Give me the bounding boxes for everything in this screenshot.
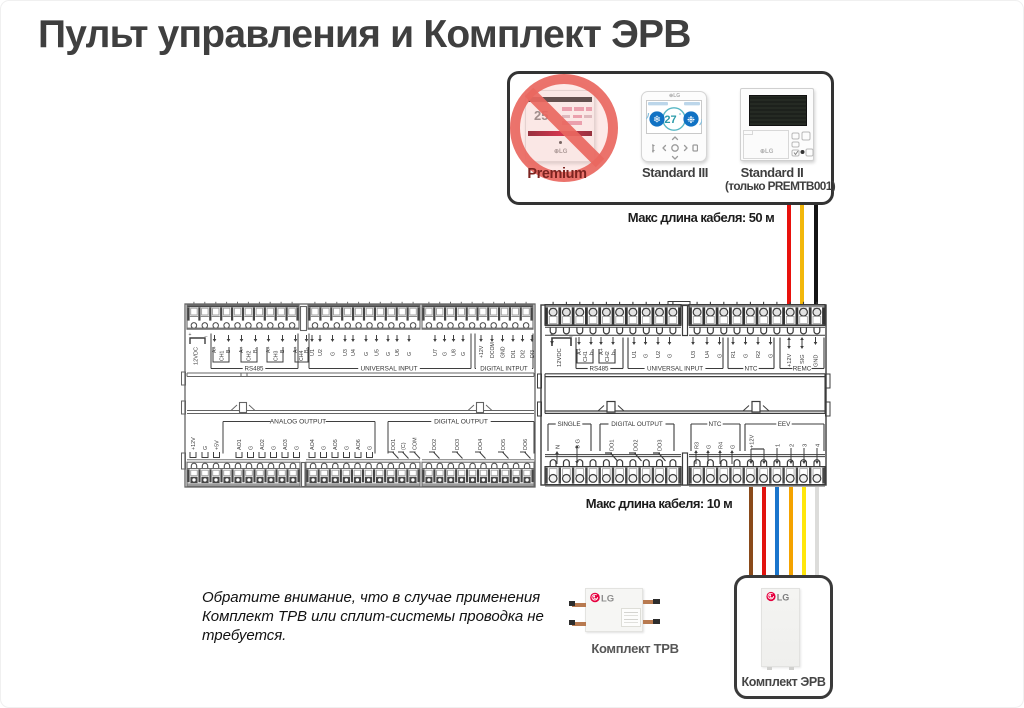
svg-text:DI2: DI2 [521,350,527,358]
svg-text:U7: U7 [433,349,439,356]
svg-text:U3: U3 [343,349,349,356]
svg-text:b-: b- [611,350,617,355]
svg-text:GND: GND [501,346,507,358]
svg-text:G: G [249,446,255,450]
svg-text:R4: R4 [719,442,725,449]
svg-text:B-: B- [253,348,259,353]
svg-text:❄: ❄ [653,115,661,126]
svg-text:NTC: NTC [709,421,722,428]
svg-text:DO2: DO2 [634,439,640,451]
svg-text:A+: A+ [239,347,245,354]
svg-text:+5V: +5V [215,440,221,450]
svg-text:U1: U1 [310,349,316,356]
svg-text:DIGITAL OUTPUT: DIGITAL OUTPUT [611,421,663,428]
svg-text:G: G [368,446,374,450]
svg-text:b-: b- [589,350,595,355]
svg-text:RS485: RS485 [245,366,264,373]
svg-text:R1: R1 [731,351,737,358]
svg-text:CH3: CH3 [274,351,280,361]
svg-text:ANALOG OUTPUT: ANALOG OUTPUT [270,419,326,426]
svg-text:❉: ❉ [687,115,695,126]
svg-text:N: N [556,445,562,449]
svg-text:DO1: DO1 [610,439,616,451]
svg-text:DO6: DO6 [523,439,529,450]
svg-text:3: 3 [803,444,809,447]
svg-text:DO3: DO3 [658,439,664,451]
svg-text:+12V: +12V [479,345,485,358]
svg-text:AO2: AO2 [260,439,266,450]
svg-text:G: G [407,352,413,356]
svg-text:G: G [272,446,278,450]
svg-text:SINGLE: SINGLE [557,421,580,428]
svg-text:CH1: CH1 [220,351,226,361]
svg-text:DI1: DI1 [511,350,517,358]
svg-text:+12V: +12V [191,437,197,450]
svg-text:DCOM: DCOM [490,342,496,358]
svg-text:NTC: NTC [745,366,758,373]
svg-text:R2: R2 [756,351,762,358]
svg-text:G: G [364,352,370,356]
svg-text:_: _ [569,332,574,338]
svg-text:DO3: DO3 [455,439,461,450]
svg-text:G: G [331,352,337,356]
svg-text:UNIVERSAL INPUT: UNIVERSAL INPUT [647,366,703,373]
svg-text:AO6: AO6 [356,439,362,450]
svg-text:+: + [550,332,553,338]
svg-text:U2: U2 [318,349,324,356]
svg-text:U5: U5 [375,349,381,356]
svg-text:G: G [345,446,351,450]
svg-text:+: + [189,332,192,338]
svg-text:EEV: EEV [778,421,791,428]
svg-text:_: _ [204,332,208,338]
svg-text:AO3: AO3 [283,439,289,450]
svg-text:DO4: DO4 [478,439,484,450]
svg-text:+12V: +12V [750,435,756,448]
svg-text:12VDC: 12VDC [557,348,563,367]
svg-text:RS485: RS485 [590,366,609,373]
svg-text:DIGITAL INTPUT: DIGITAL INTPUT [480,366,528,373]
svg-text:DIGITAL OUTPUT: DIGITAL OUTPUT [434,419,488,426]
svg-text:COM: COM [413,437,419,450]
svg-text:27: 27 [664,114,676,126]
svg-text:LG: LG [601,594,614,605]
svg-text:G: G [386,352,392,356]
svg-text:U3: U3 [691,351,697,358]
svg-text:°: ° [679,113,681,119]
svg-text:1: 1 [776,444,782,447]
svg-text:G: G [443,352,449,356]
svg-text:SIG: SIG [800,354,806,364]
svg-text:U8: U8 [452,349,458,356]
svg-text:U1: U1 [632,351,638,358]
svg-text:G: G [731,445,737,449]
svg-text:DO2: DO2 [432,439,438,450]
svg-text:G: G [322,446,328,450]
svg-text:UNIVERSAL INPUT: UNIVERSAL INPUT [361,366,418,373]
svg-text:G: G [644,354,650,358]
svg-text:AO4: AO4 [310,439,316,450]
svg-text:U2: U2 [656,351,662,358]
svg-text:U4: U4 [351,349,357,356]
svg-text:G: G [668,354,674,358]
svg-text:G: G [295,446,301,450]
svg-text:REMC: REMC [793,366,812,373]
svg-text:G: G [744,354,750,358]
svg-text:G: G [203,446,209,450]
svg-text:GND: GND [814,355,820,367]
svg-text:U6: U6 [395,349,401,356]
svg-text:G: G [707,445,713,449]
svg-text:DO1: DO1 [391,439,397,450]
svg-text:G: G [461,352,467,356]
svg-text:CH2: CH2 [247,351,253,361]
svg-text:4: 4 [816,443,822,447]
svg-text:AO1: AO1 [237,439,243,450]
svg-text:(C): (C) [401,442,407,450]
svg-text:R3: R3 [695,442,701,449]
svg-text:AO5: AO5 [333,439,339,450]
svg-text:LG: LG [777,592,790,602]
svg-text:12VDC: 12VDC [194,347,200,365]
svg-text:CH2: CH2 [605,351,611,362]
svg-text:U4: U4 [705,351,711,358]
svg-text:DO5: DO5 [501,439,507,450]
svg-text:CH1: CH1 [583,351,589,362]
svg-text:2: 2 [790,444,796,447]
svg-text:CH4: CH4 [299,351,305,361]
